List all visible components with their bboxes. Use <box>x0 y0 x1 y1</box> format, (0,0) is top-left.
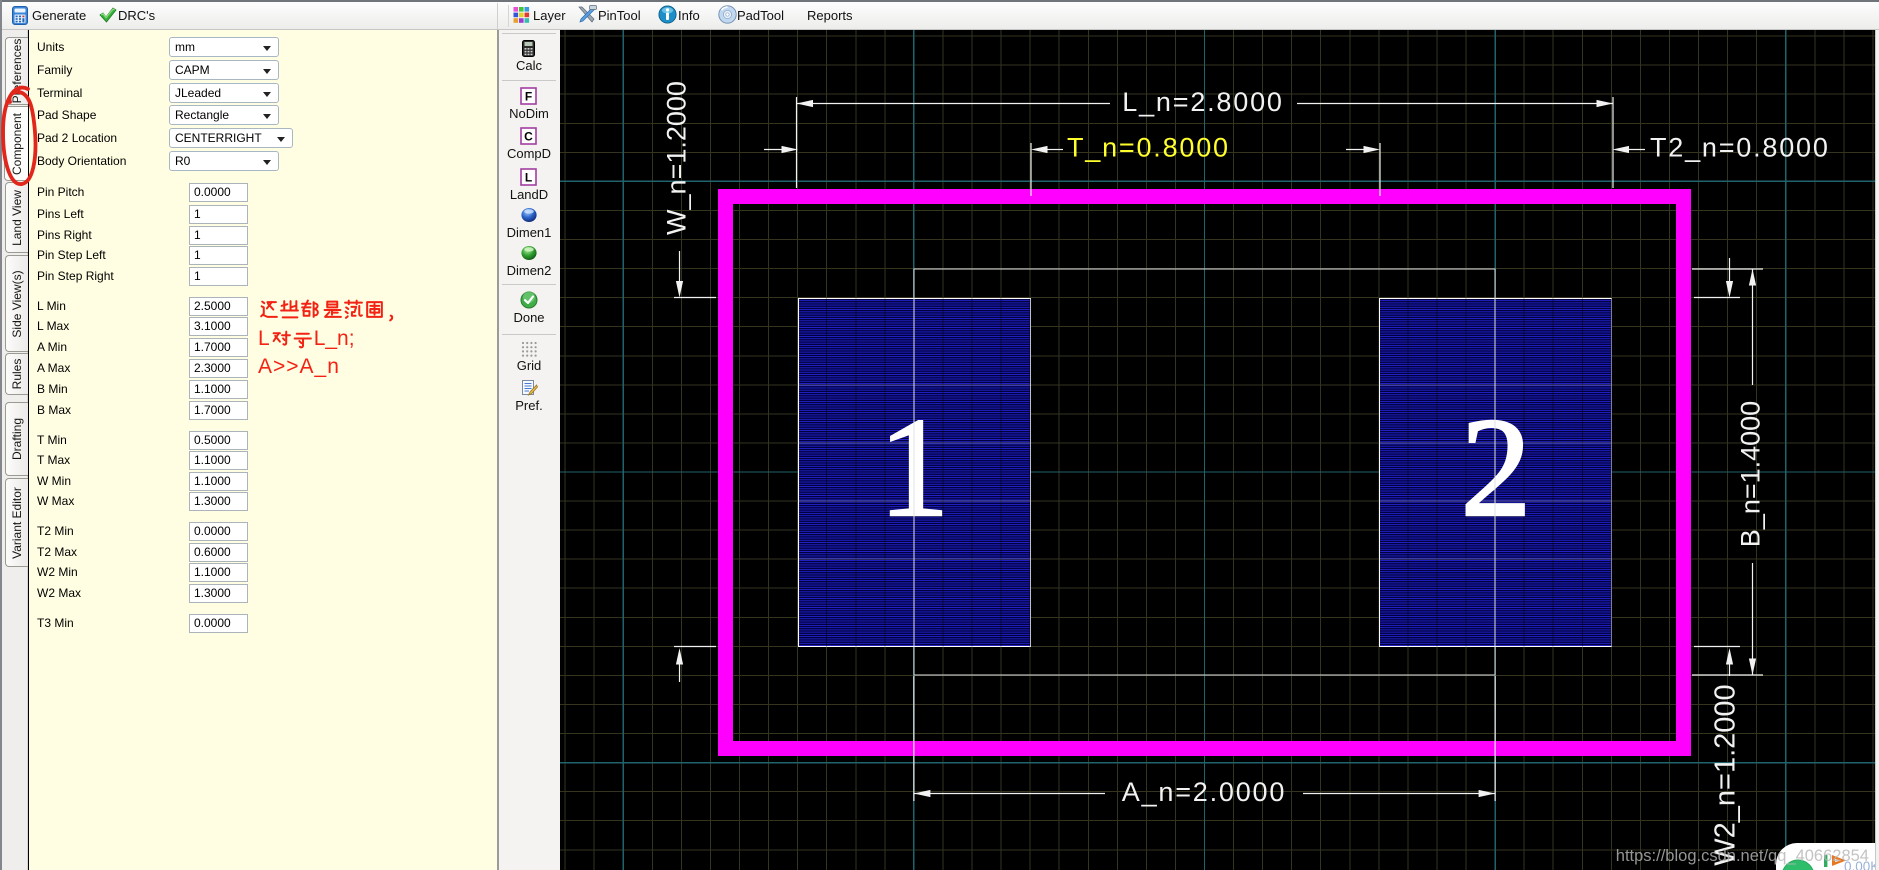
svg-text:W2_n=1.2000: W2_n=1.2000 <box>1710 684 1742 865</box>
svg-text:B_n=1.4000: B_n=1.4000 <box>1736 401 1766 547</box>
svg-text:2: 2 <box>1461 388 1532 546</box>
svg-text:T2_n=0.8000: T2_n=0.8000 <box>1650 133 1830 163</box>
svg-text:C: C <box>524 130 533 144</box>
svg-text:W_n=1.2000: W_n=1.2000 <box>662 81 692 235</box>
svg-text:L: L <box>525 171 532 185</box>
svg-text:L_n=2.8000: L_n=2.8000 <box>1122 87 1283 117</box>
svg-text:A_n=2.0000: A_n=2.0000 <box>1122 777 1286 807</box>
svg-text:F: F <box>525 90 532 104</box>
svg-text:T_n=0.8000: T_n=0.8000 <box>1067 133 1230 163</box>
svg-text:https://blog.csdn.net/qq_40662: https://blog.csdn.net/qq_40662854 <box>1616 847 1869 865</box>
